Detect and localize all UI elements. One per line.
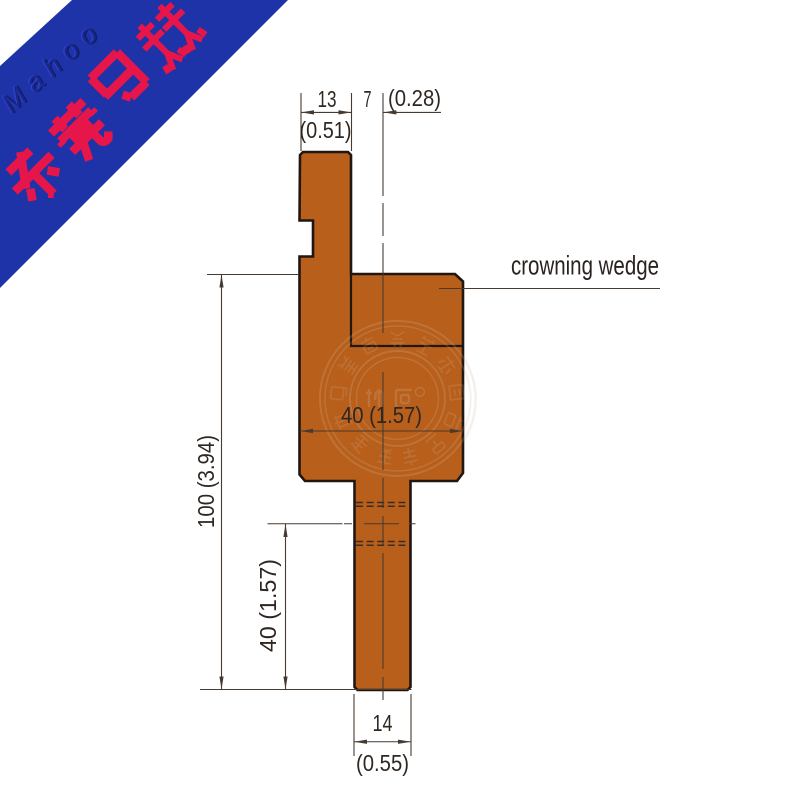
svg-text:crowning wedge: crowning wedge	[511, 251, 659, 281]
svg-text:(0.28): (0.28)	[388, 85, 441, 111]
svg-text:40 (1.57): 40 (1.57)	[341, 402, 422, 428]
svg-text:13: 13	[318, 86, 337, 112]
svg-text:100 (3.94): 100 (3.94)	[193, 435, 219, 528]
svg-text:40 (1.57): 40 (1.57)	[255, 559, 281, 652]
svg-text:(0.55): (0.55)	[356, 750, 409, 776]
svg-text:14: 14	[373, 710, 393, 736]
svg-text:(0.51): (0.51)	[300, 117, 352, 143]
svg-text:7: 7	[364, 86, 372, 112]
